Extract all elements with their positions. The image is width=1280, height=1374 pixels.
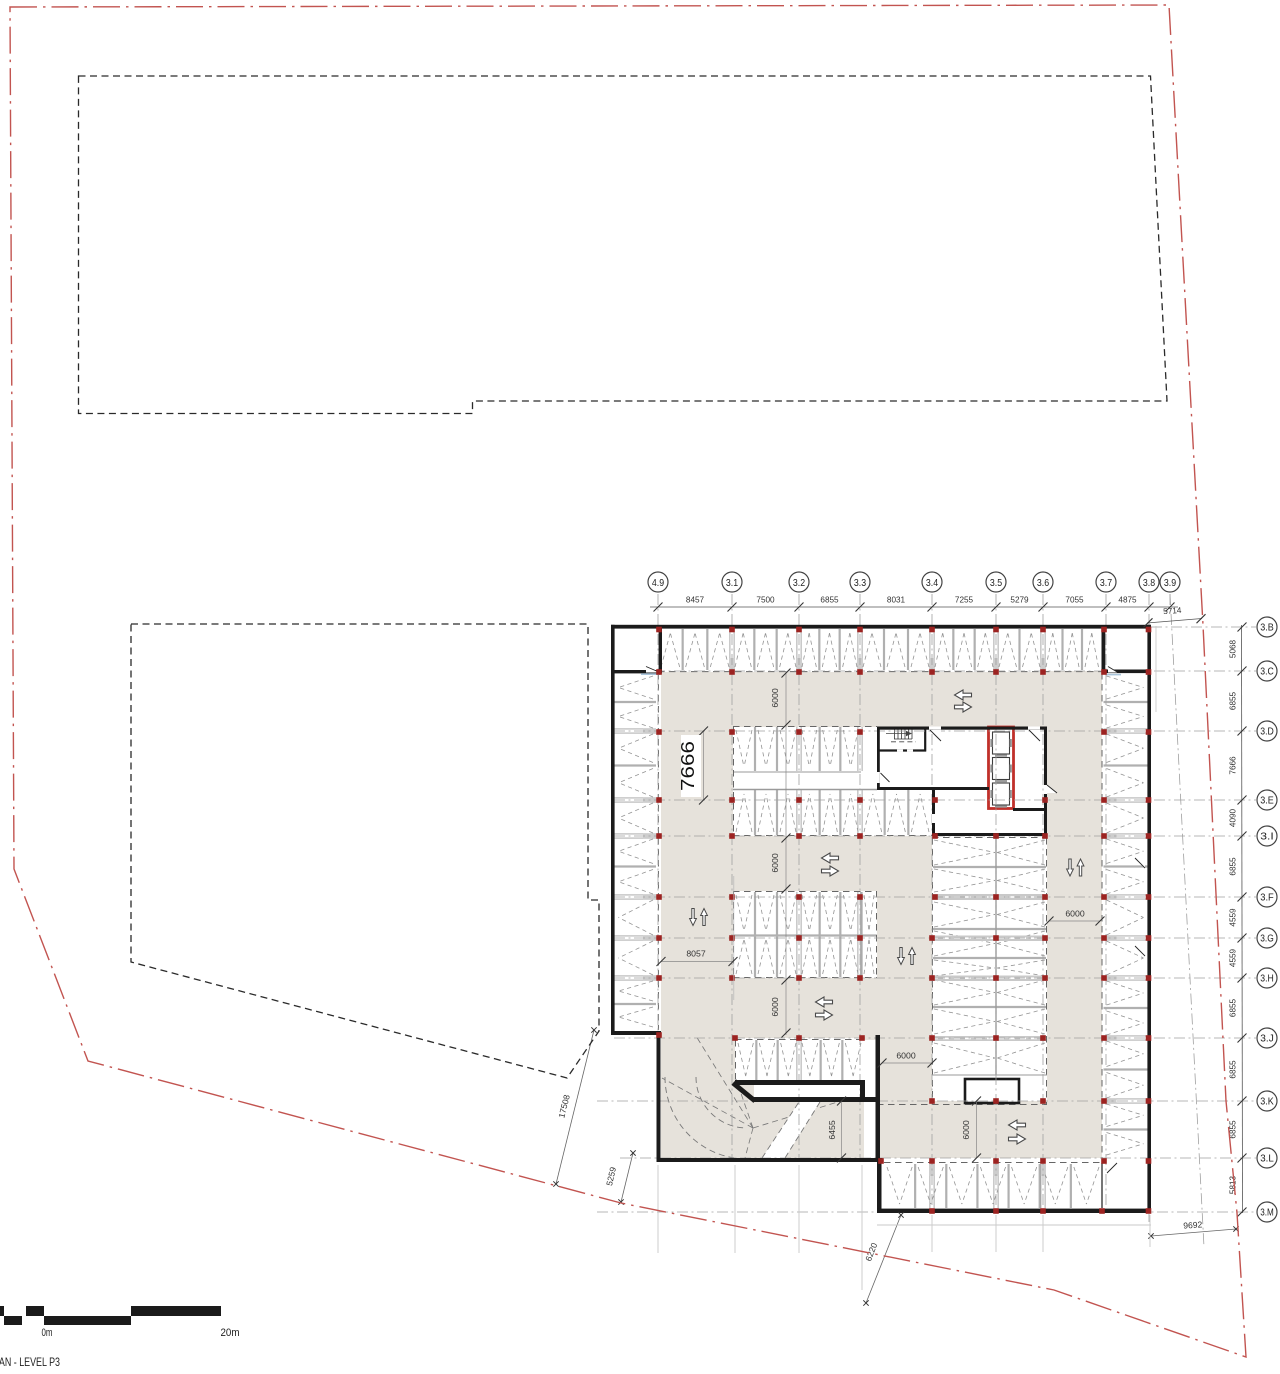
svg-text:3.I: 3.I xyxy=(1260,832,1274,843)
svg-text:7500: 7500 xyxy=(756,596,775,605)
svg-text:6855: 6855 xyxy=(820,596,839,605)
svg-text:3.1: 3.1 xyxy=(726,578,738,589)
svg-text:3.K: 3.K xyxy=(1260,1097,1274,1108)
svg-text:3.D: 3.D xyxy=(1260,727,1274,738)
svg-text:6000: 6000 xyxy=(896,1051,915,1061)
svg-text:20m: 20m xyxy=(221,1327,240,1339)
svg-text:3.F: 3.F xyxy=(1260,893,1274,904)
svg-text:3.M: 3.M xyxy=(1260,1208,1274,1219)
svg-text:4559: 4559 xyxy=(1229,948,1238,967)
svg-text:7055: 7055 xyxy=(1065,596,1084,605)
svg-text:0m: 0m xyxy=(42,1327,53,1339)
svg-text:8031: 8031 xyxy=(887,596,906,605)
svg-text:5279: 5279 xyxy=(1010,596,1029,605)
svg-text:3.6: 3.6 xyxy=(1037,578,1049,589)
svg-text:6855: 6855 xyxy=(1229,998,1238,1017)
svg-text:6000: 6000 xyxy=(770,853,780,872)
svg-text:6000: 6000 xyxy=(961,1120,971,1139)
svg-text:8457: 8457 xyxy=(686,596,705,605)
svg-text:4090: 4090 xyxy=(1229,808,1238,827)
svg-text:3.5: 3.5 xyxy=(990,578,1002,589)
svg-text:3.7: 3.7 xyxy=(1100,578,1112,589)
svg-text:3.J: 3.J xyxy=(1260,1034,1274,1045)
svg-text:PLAN - LEVEL P3: PLAN - LEVEL P3 xyxy=(0,1357,60,1369)
svg-text:4.9: 4.9 xyxy=(652,578,664,589)
svg-text:3.H: 3.H xyxy=(1260,974,1274,985)
svg-text:6855: 6855 xyxy=(1229,691,1238,710)
svg-text:7666: 7666 xyxy=(1229,756,1238,775)
svg-text:3.8: 3.8 xyxy=(1143,578,1155,589)
svg-text:4559: 4559 xyxy=(1229,908,1238,927)
svg-text:7255: 7255 xyxy=(955,596,974,605)
svg-text:6855: 6855 xyxy=(1229,857,1238,876)
svg-text:6000: 6000 xyxy=(1065,909,1084,919)
svg-text:3.9: 3.9 xyxy=(1164,578,1176,589)
svg-text:3.E: 3.E xyxy=(1260,796,1274,807)
svg-text:6455: 6455 xyxy=(827,1120,837,1139)
svg-text:3.2: 3.2 xyxy=(793,578,805,589)
svg-text:3.B: 3.B xyxy=(1260,623,1274,634)
svg-text:6000: 6000 xyxy=(770,688,780,707)
svg-text:3.4: 3.4 xyxy=(926,578,938,589)
svg-text:4875: 4875 xyxy=(1118,596,1137,605)
svg-text:6000: 6000 xyxy=(770,997,780,1016)
svg-text:9692: 9692 xyxy=(1183,1219,1203,1230)
svg-text:5068: 5068 xyxy=(1229,639,1238,658)
svg-text:6855: 6855 xyxy=(1229,1060,1238,1079)
svg-text:5714: 5714 xyxy=(1163,606,1182,616)
svg-text:3.G: 3.G xyxy=(1260,934,1274,945)
svg-text:3.3: 3.3 xyxy=(854,578,866,589)
svg-text:7666: 7666 xyxy=(678,741,698,791)
svg-text:3.C: 3.C xyxy=(1260,667,1274,678)
svg-text:8057: 8057 xyxy=(686,949,705,959)
svg-text:3.L: 3.L xyxy=(1260,1154,1274,1165)
